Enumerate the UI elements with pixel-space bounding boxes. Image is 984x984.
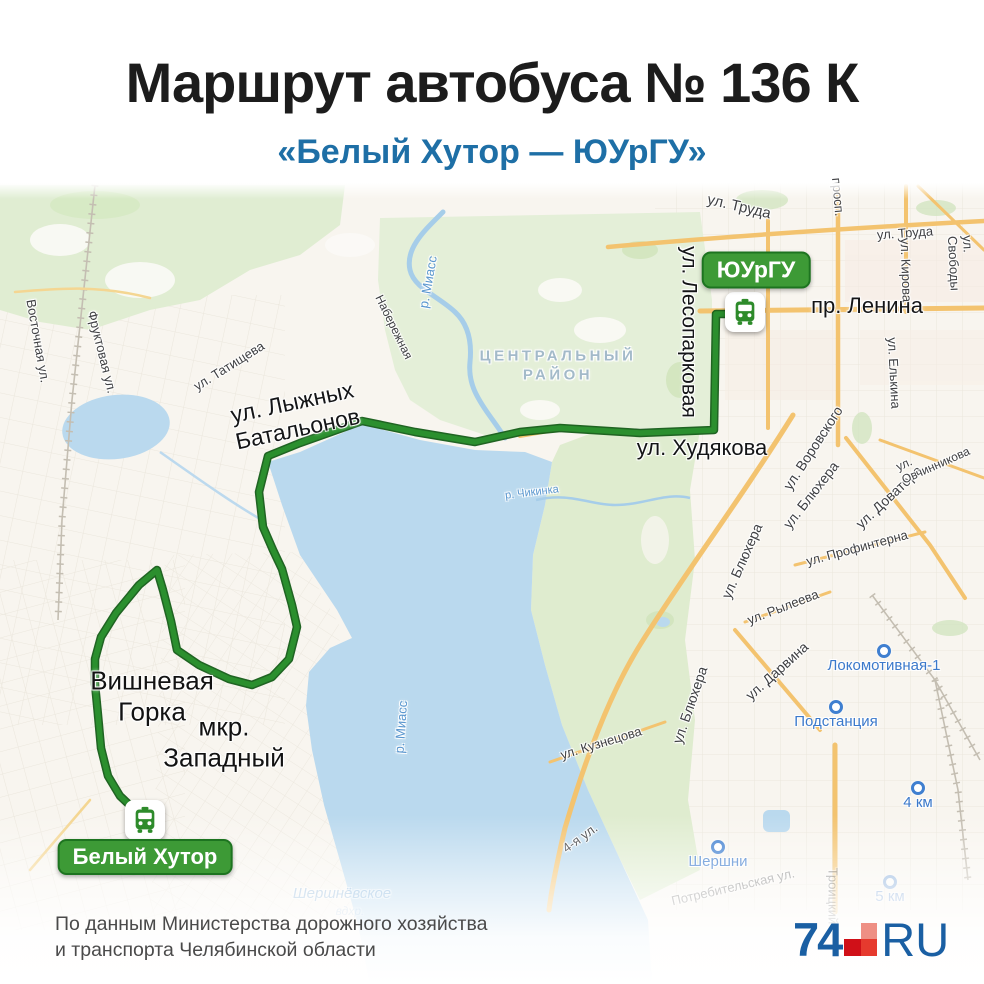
endpoint-badge-yuurgu: ЮУрГУ	[702, 252, 811, 289]
bus-icon	[725, 292, 765, 332]
bus-glyph	[131, 806, 159, 834]
station-label: Подстанция	[794, 713, 877, 730]
bus-glyph	[731, 298, 759, 326]
station-label: Локомотивная-1	[828, 657, 941, 674]
station-marker-icon	[911, 781, 925, 795]
bus-icon	[125, 800, 165, 840]
station-marker-icon	[877, 644, 891, 658]
endpoint-badge-bely-khutor: Белый Хутор	[58, 839, 233, 875]
station-marker-icon	[829, 700, 843, 714]
page-title: Маршрут автобуса № 136 К	[0, 50, 984, 115]
page-subtitle: «Белый Хутор — ЮУрГУ»	[0, 133, 984, 172]
map-top-fade	[0, 183, 984, 199]
station-label: 4 км	[903, 794, 932, 811]
bus-route-infographic: Маршрут автобуса № 136 К «Белый Хутор — …	[0, 0, 984, 984]
